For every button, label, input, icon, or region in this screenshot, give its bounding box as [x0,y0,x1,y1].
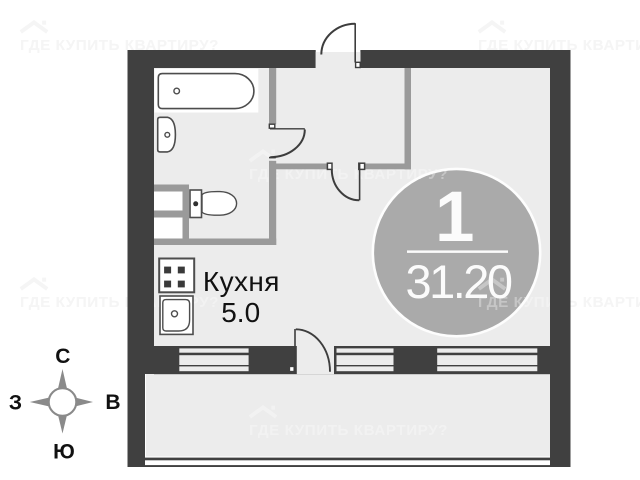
svg-text:Ю: Ю [53,440,75,463]
svg-text:31.20: 31.20 [405,255,511,308]
svg-text:В: В [105,391,120,414]
svg-text:5.0: 5.0 [221,297,260,328]
svg-text:Кухня: Кухня [203,266,280,297]
svg-text:1: 1 [435,178,475,257]
svg-text:С: С [55,345,70,368]
svg-text:З: З [9,392,22,415]
